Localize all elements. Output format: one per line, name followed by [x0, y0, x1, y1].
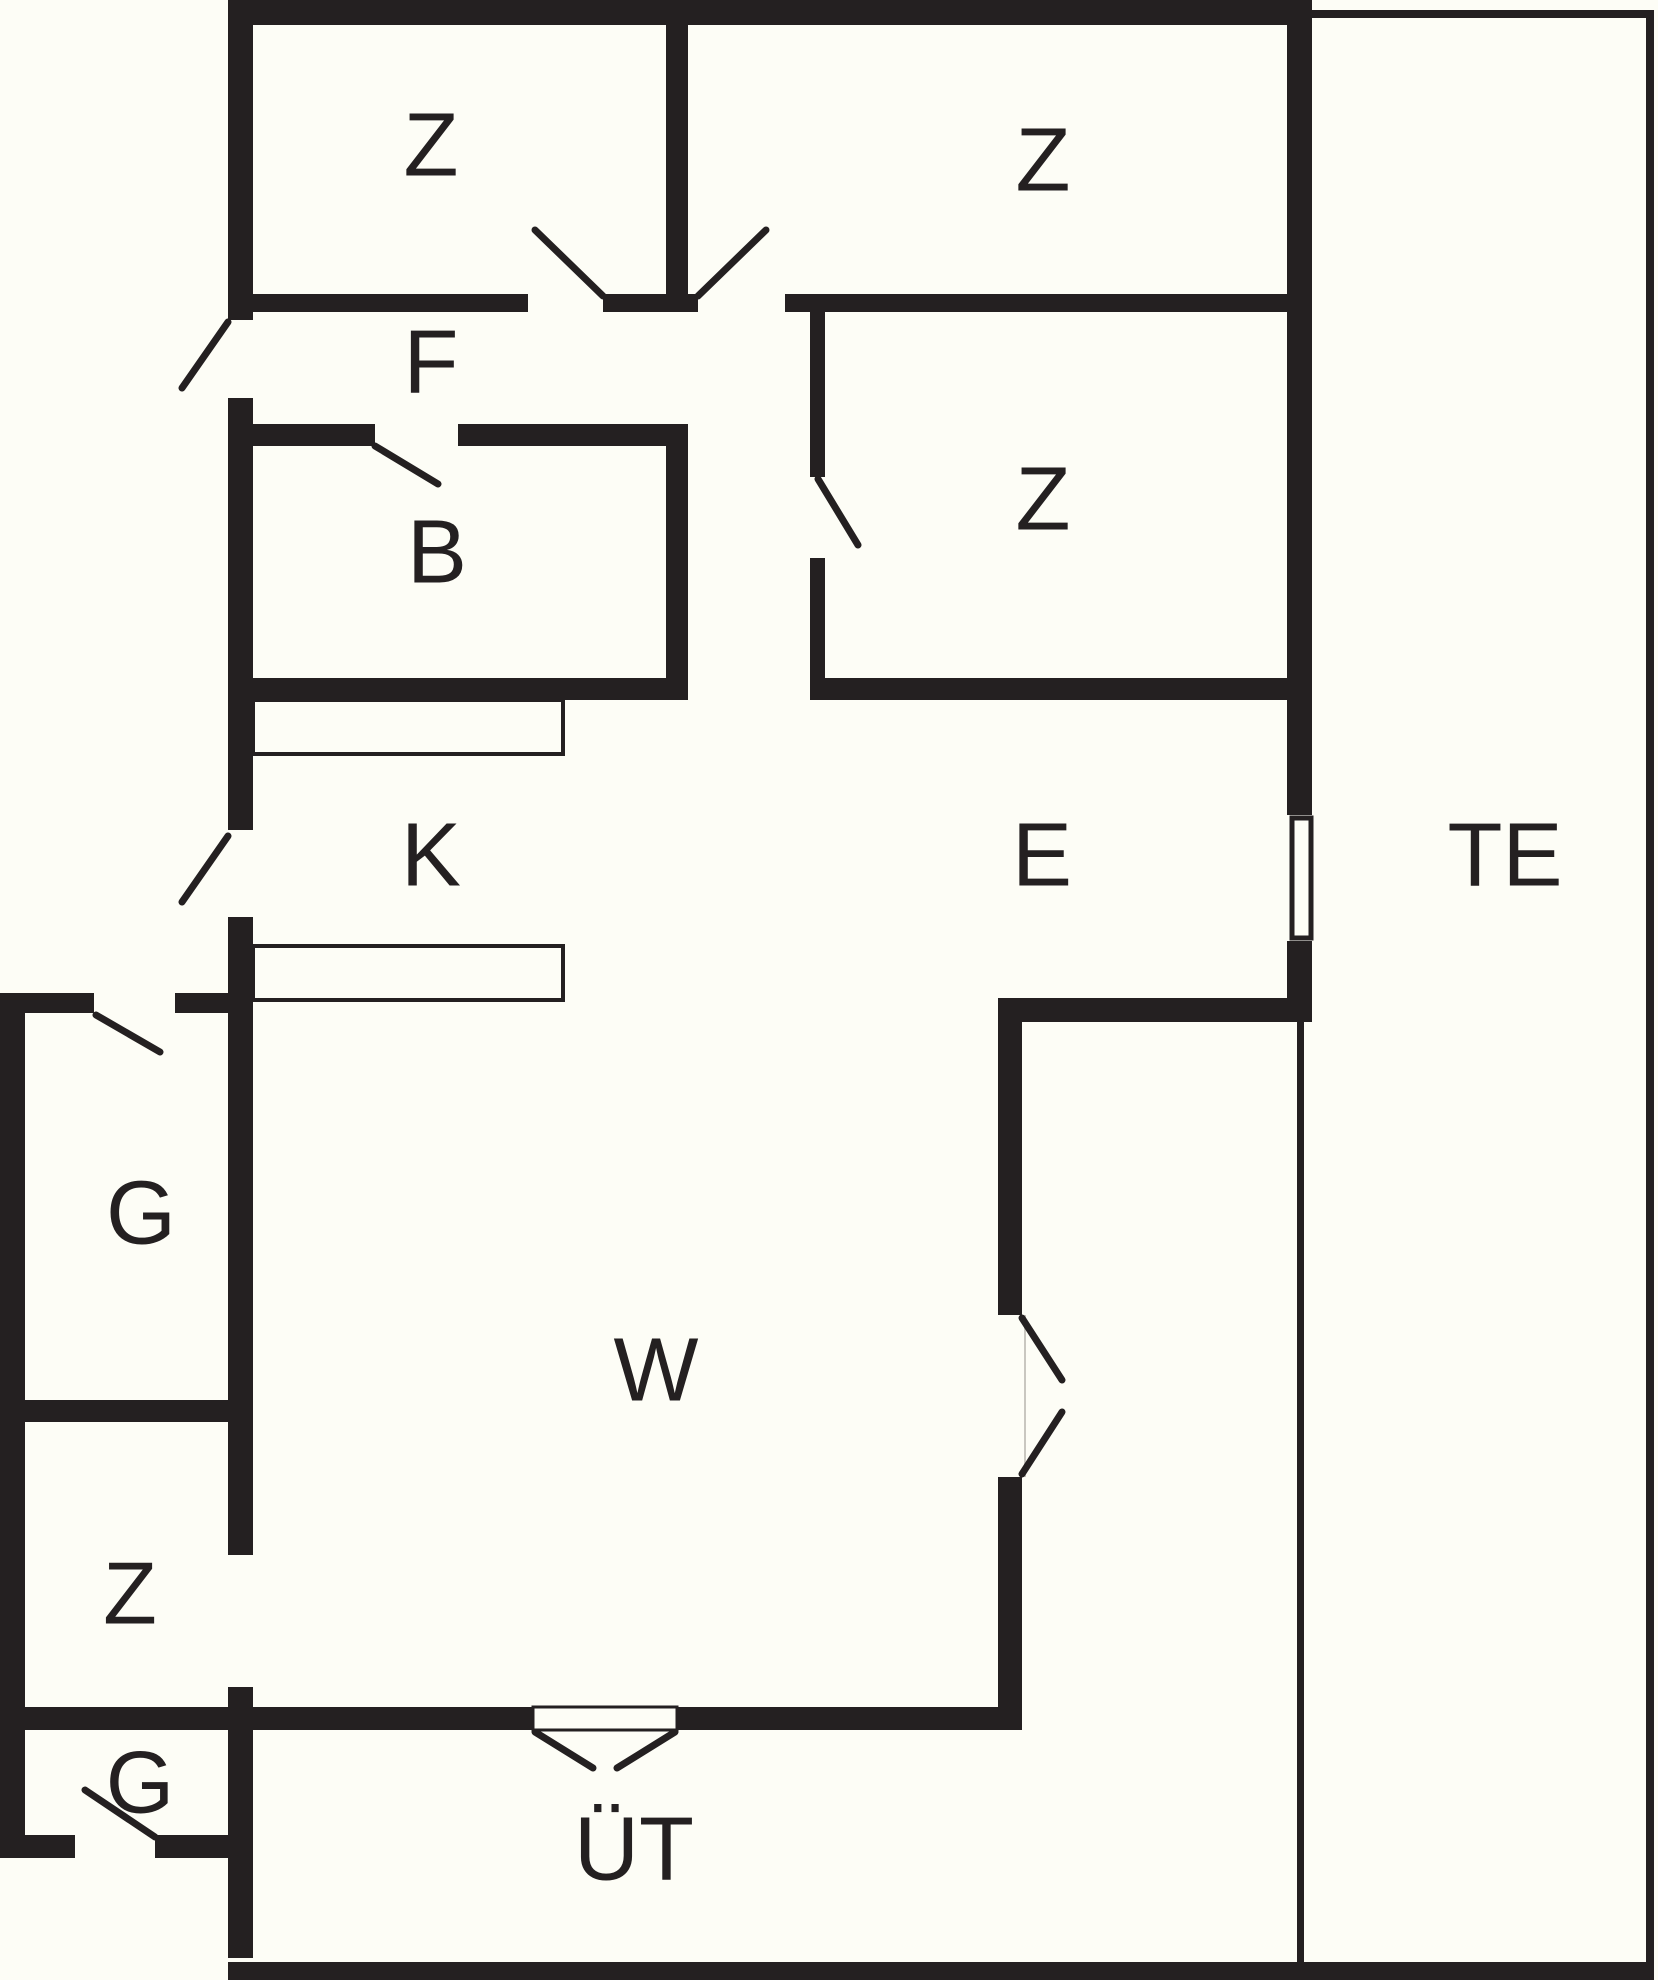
room-label-storage-lower: G — [106, 1733, 174, 1832]
wall-living-south-right — [677, 1707, 1022, 1730]
wall-bath-bottom — [228, 678, 688, 700]
wall-terrace-west-line — [1297, 1022, 1304, 1962]
wall-bath-top-right — [458, 424, 666, 446]
wall-living-east-lower — [998, 1477, 1022, 1730]
wall-bed3-west-lower — [810, 558, 825, 678]
wall-zrooms-bottom-mid — [603, 294, 698, 312]
wall-west-wall-mid — [228, 398, 253, 830]
room-label-bathroom: B — [407, 502, 467, 602]
south-door-threshold — [533, 1707, 677, 1730]
room-label-kitchen: K — [401, 805, 461, 905]
wall-annex-bottom-right — [155, 1835, 253, 1858]
wall-annex-top-right — [175, 993, 253, 1013]
terrace-door-leaf — [1292, 818, 1311, 938]
wall-entry-bottom — [998, 998, 1287, 1022]
wall-zrooms-bottom-right — [785, 294, 1287, 312]
wall-east-wall-lower — [1287, 941, 1312, 1022]
wall-bed3-west-upper — [810, 312, 825, 477]
wall-west-wall-upper — [228, 0, 253, 320]
wall-terrace-east-wall — [1646, 10, 1654, 1980]
wall-bedroom-divider — [666, 25, 688, 294]
wall-south-outer-wall — [228, 1962, 1654, 1980]
room-label-covered-terrace: ÜT — [574, 1799, 694, 1899]
wall-living-east-upper — [998, 998, 1022, 1315]
floor-plan: ZZFBZKETEGWZGÜT — [0, 0, 1658, 1980]
wall-bath-east-wall — [666, 424, 688, 700]
wall-zrooms-bottom-left — [253, 294, 528, 312]
wall-living-south-left — [25, 1707, 533, 1730]
wall-terrace-top-wall — [1312, 10, 1653, 18]
room-label-hallway: F — [404, 312, 459, 412]
room-label-storage-upper: G — [106, 1163, 176, 1263]
room-label-terrace: TE — [1447, 805, 1562, 905]
room-label-bedroom-middle: Z — [1016, 449, 1071, 549]
wall-annex-west-wall — [0, 993, 25, 1858]
room-label-entry: E — [1012, 805, 1072, 905]
kitchen-counter-lower — [253, 946, 563, 1000]
wall-bed3-bottom — [810, 678, 1287, 700]
floor-plan-page: ZZFBZKETEGWZGÜT — [0, 0, 1658, 1980]
room-label-living-room: W — [614, 1320, 699, 1420]
wall-east-wall-upper — [1287, 0, 1312, 815]
wall-top-wall — [228, 0, 1312, 25]
wall-annex-bottom-left — [0, 1835, 75, 1858]
wall-annex-gz-divider — [25, 1400, 228, 1422]
room-label-bedroom-annex: Z — [103, 1544, 157, 1643]
kitchen-counter-upper — [253, 700, 563, 754]
wall-bath-top-left — [253, 424, 375, 446]
room-label-bedroom-top-left: Z — [404, 95, 459, 195]
room-label-bedroom-top-right: Z — [1016, 110, 1071, 210]
